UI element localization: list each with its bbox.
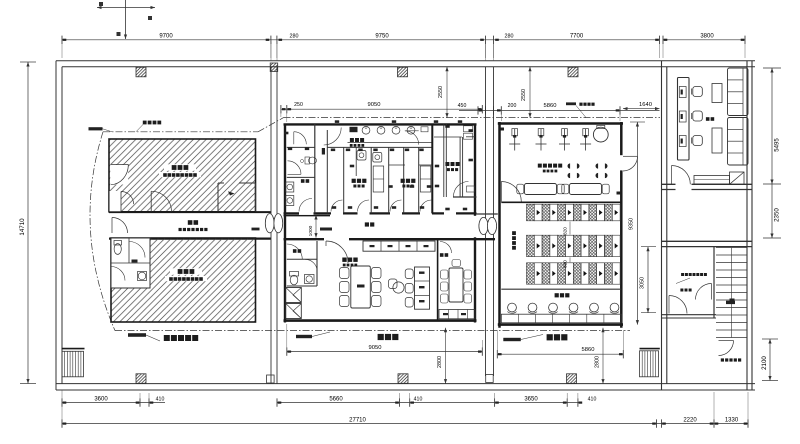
- svg-text:5860: 5860: [582, 347, 595, 353]
- svg-text:9700: 9700: [159, 34, 173, 40]
- svg-text:820: 820: [563, 227, 568, 235]
- svg-text:3800: 3800: [700, 34, 714, 40]
- svg-text:9750: 9750: [375, 34, 389, 40]
- svg-text:5860: 5860: [544, 103, 557, 109]
- svg-text:9050: 9050: [369, 345, 382, 351]
- svg-text:1000: 1000: [308, 225, 314, 236]
- svg-text:5495: 5495: [775, 138, 781, 152]
- svg-text:27710: 27710: [349, 418, 366, 424]
- svg-text:2800: 2800: [595, 356, 601, 368]
- svg-text:820: 820: [563, 260, 568, 268]
- svg-text:2550: 2550: [438, 86, 444, 98]
- svg-text:7700: 7700: [570, 34, 584, 40]
- svg-text:2220: 2220: [683, 418, 697, 424]
- svg-text:9350: 9350: [629, 218, 635, 230]
- svg-text:9050: 9050: [368, 102, 381, 108]
- svg-text:3600: 3600: [94, 397, 108, 403]
- svg-text:3050: 3050: [640, 277, 646, 289]
- svg-text:2100: 2100: [761, 356, 768, 370]
- svg-text:280: 280: [505, 34, 514, 40]
- svg-text:410: 410: [156, 397, 165, 403]
- svg-text:200: 200: [508, 103, 517, 109]
- svg-text:410: 410: [414, 397, 423, 403]
- svg-text:14710: 14710: [19, 218, 26, 236]
- svg-text:450: 450: [458, 103, 467, 109]
- svg-text:3650: 3650: [524, 397, 538, 403]
- svg-text:2550: 2550: [521, 89, 527, 101]
- svg-text:280: 280: [290, 34, 299, 40]
- svg-text:1640: 1640: [639, 102, 652, 108]
- svg-text:1330: 1330: [725, 418, 739, 424]
- svg-text:2800: 2800: [437, 356, 443, 368]
- svg-text:2350: 2350: [774, 208, 781, 222]
- svg-text:410: 410: [588, 397, 597, 403]
- svg-text:250: 250: [294, 102, 303, 108]
- svg-text:5660: 5660: [329, 397, 343, 403]
